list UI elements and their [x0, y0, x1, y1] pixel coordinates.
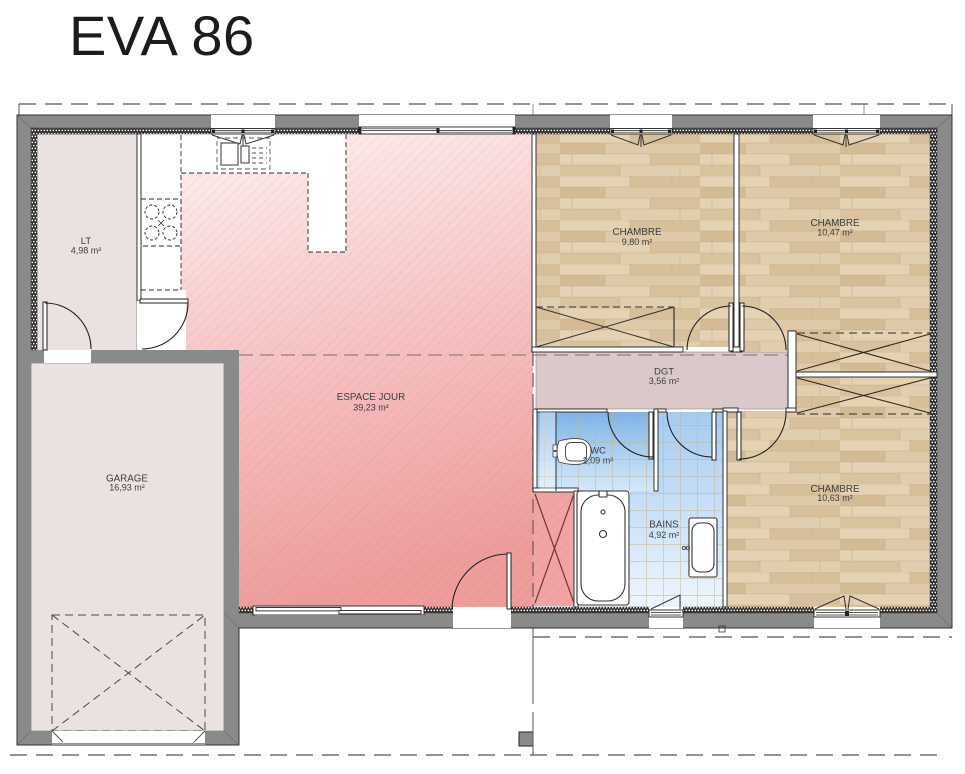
svg-text:4,92 m²: 4,92 m²: [649, 530, 680, 540]
svg-text:ESPACE JOUR: ESPACE JOUR: [337, 392, 405, 403]
svg-text:39,23 m²: 39,23 m²: [353, 403, 389, 413]
svg-text:10,63 m²: 10,63 m²: [817, 493, 853, 503]
svg-text:9,80 m²: 9,80 m²: [622, 237, 653, 247]
svg-text:2,09 m²: 2,09 m²: [583, 456, 614, 466]
svg-text:4,98 m²: 4,98 m²: [71, 246, 102, 256]
svg-text:EVA 86: EVA 86: [69, 4, 255, 67]
svg-text:10,47 m²: 10,47 m²: [817, 228, 853, 238]
svg-text:16,93 m²: 16,93 m²: [109, 483, 145, 493]
svg-text:3,56 m²: 3,56 m²: [649, 376, 680, 386]
svg-text:BAINS: BAINS: [649, 520, 679, 531]
